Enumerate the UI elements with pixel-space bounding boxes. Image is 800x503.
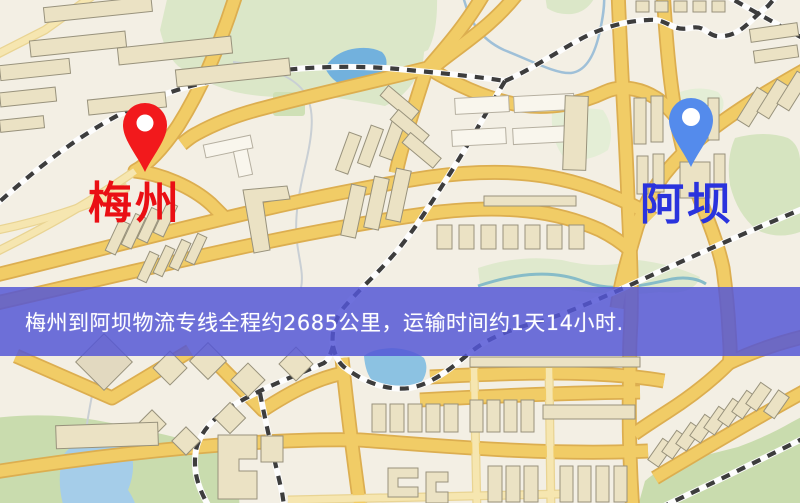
route-info-text: 梅州到阿坝物流专线全程约2685公里，运输时间约1天14小时. [25,307,624,337]
map-canvas: 梅州 阿坝 [0,0,800,503]
route-info-banner: 梅州到阿坝物流专线全程约2685公里，运输时间约1天14小时. [0,287,800,356]
destination-city-label: 阿坝 [640,179,734,230]
origin-city-label: 梅州 [88,178,182,229]
logistics-route-map: 梅州 阿坝 梅州到阿坝物流专线全程约2685公里，运输时间约1天14小时. [0,0,800,503]
